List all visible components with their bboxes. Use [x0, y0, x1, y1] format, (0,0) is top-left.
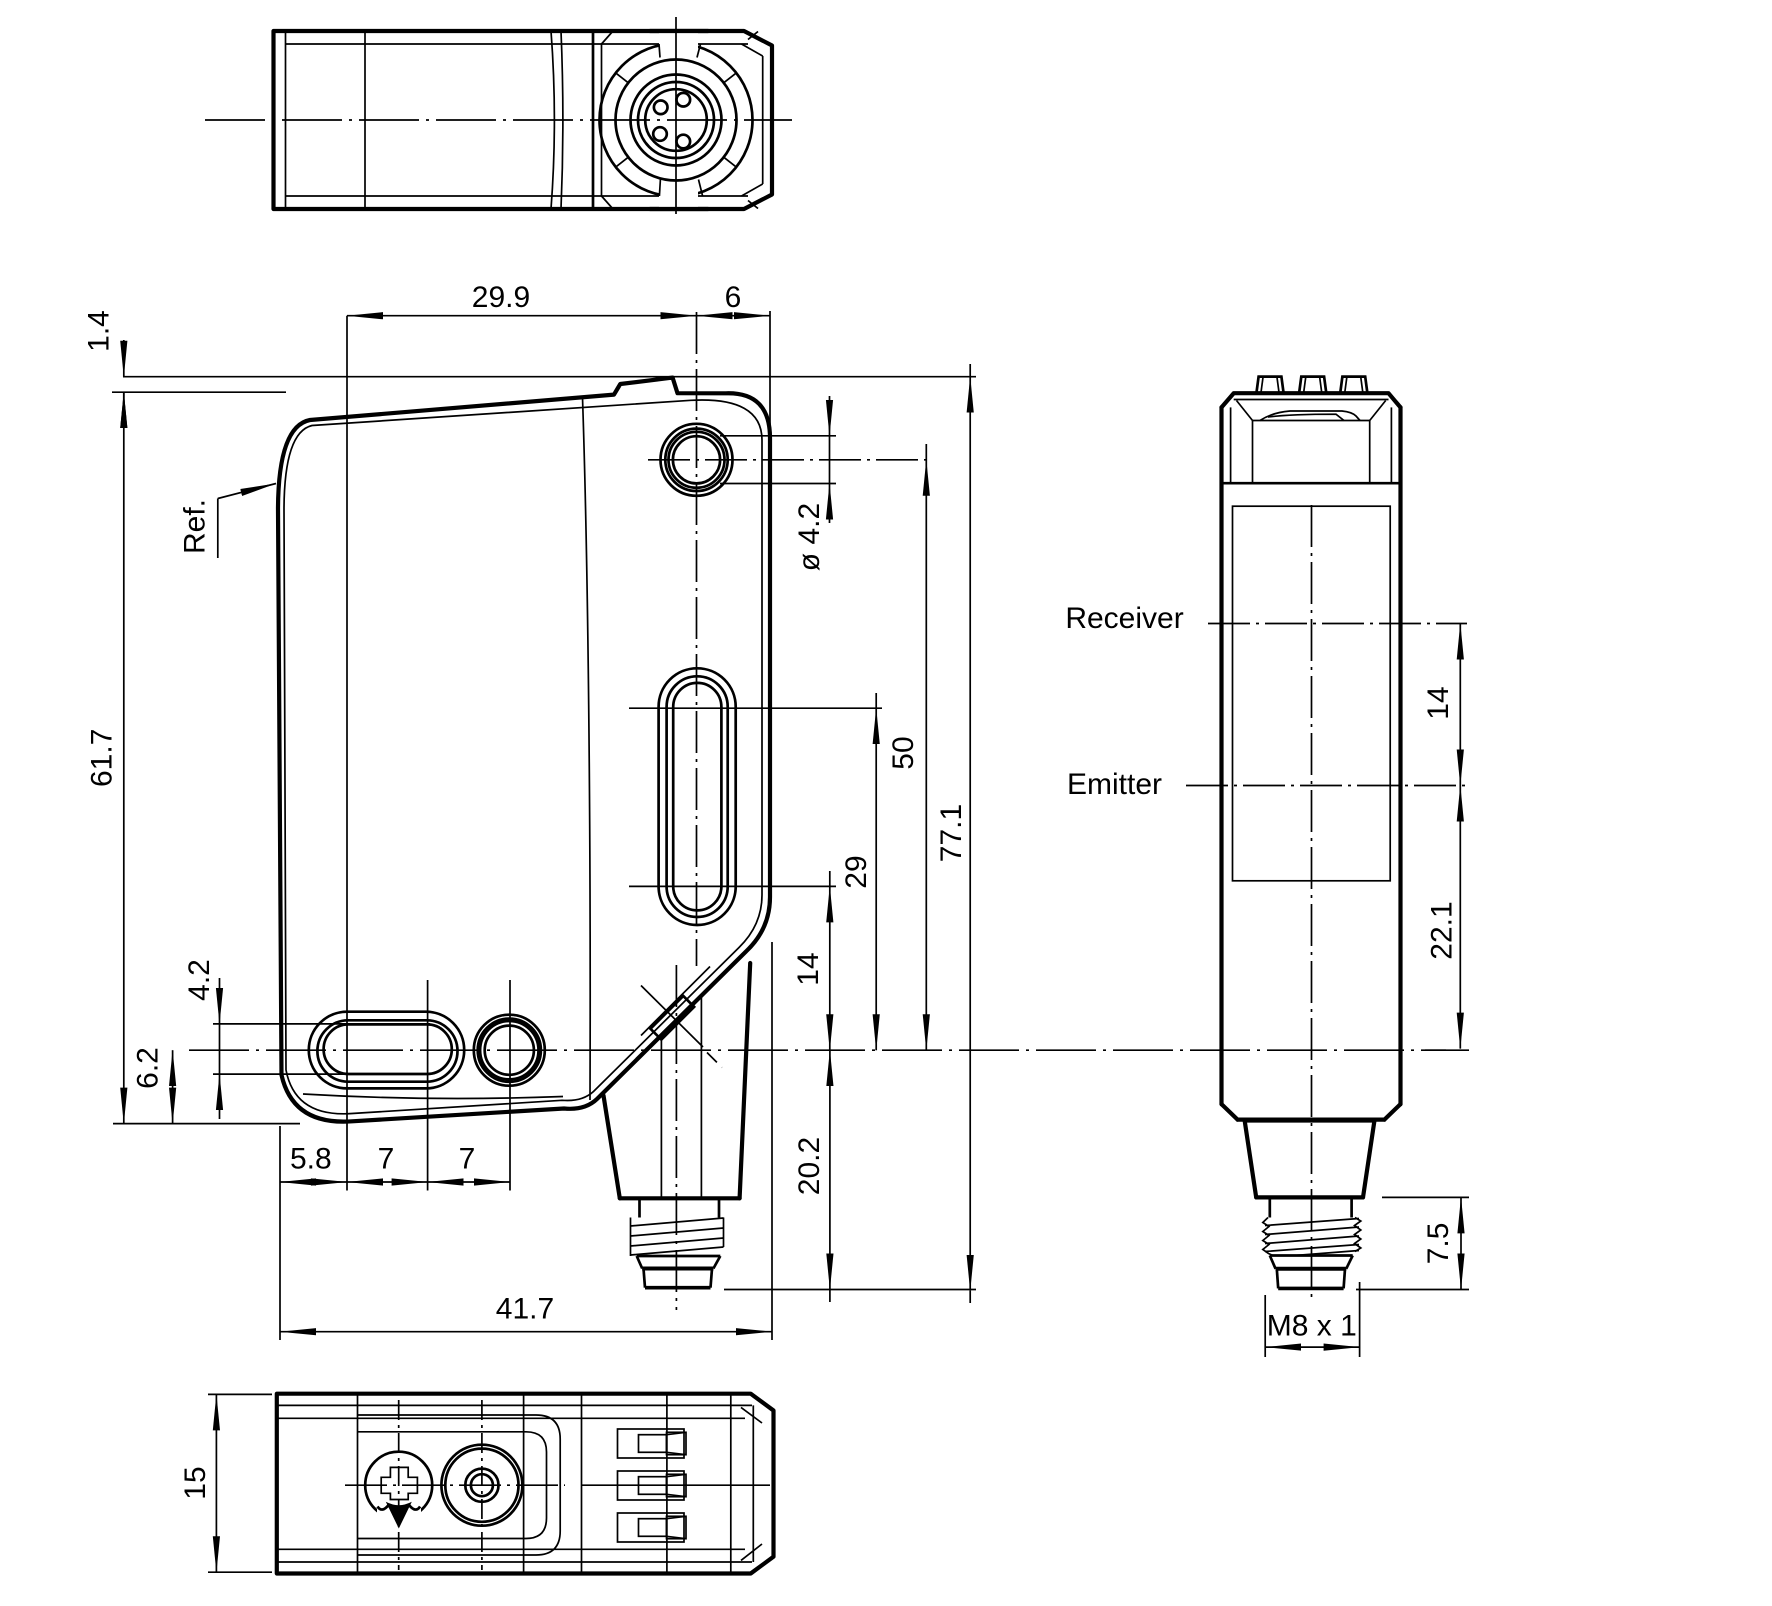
- svg-text:61.7: 61.7: [86, 729, 119, 787]
- svg-text:50: 50: [887, 736, 920, 769]
- svg-text:Ref.: Ref.: [178, 499, 211, 554]
- svg-text:15: 15: [179, 1466, 212, 1499]
- svg-text:7.5: 7.5: [1422, 1223, 1455, 1265]
- svg-text:29: 29: [840, 855, 873, 888]
- svg-text:6: 6: [725, 281, 742, 314]
- svg-text:ø 4.2: ø 4.2: [793, 503, 826, 571]
- svg-text:7: 7: [459, 1143, 476, 1176]
- svg-text:20.2: 20.2: [793, 1137, 826, 1195]
- svg-text:14: 14: [792, 952, 825, 985]
- svg-text:Receiver: Receiver: [1065, 602, 1183, 635]
- svg-text:Emitter: Emitter: [1067, 768, 1162, 801]
- svg-text:77.1: 77.1: [935, 804, 968, 862]
- svg-text:14: 14: [1422, 686, 1455, 719]
- svg-text:5.8: 5.8: [290, 1143, 332, 1176]
- svg-text:1.4: 1.4: [83, 310, 116, 352]
- svg-text:7: 7: [378, 1143, 395, 1176]
- svg-text:29.9: 29.9: [472, 281, 530, 314]
- svg-text:M8 x 1: M8 x 1: [1267, 1309, 1357, 1342]
- svg-text:4.2: 4.2: [183, 959, 216, 1001]
- svg-text:41.7: 41.7: [496, 1292, 554, 1325]
- svg-text:22.1: 22.1: [1426, 901, 1459, 959]
- svg-text:6.2: 6.2: [131, 1047, 164, 1089]
